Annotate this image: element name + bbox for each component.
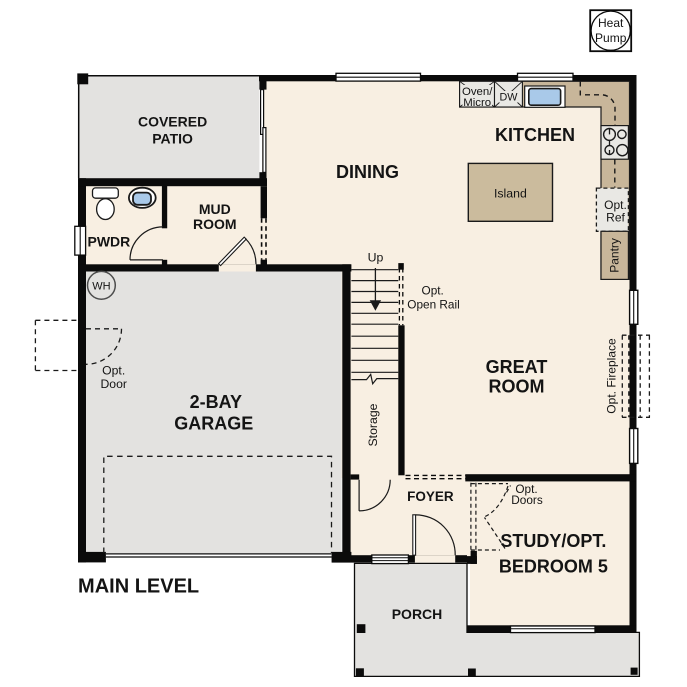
svg-text:Opt. Fireplace: Opt. Fireplace	[604, 338, 618, 414]
svg-text:Pump: Pump	[595, 31, 627, 45]
svg-text:DW: DW	[500, 92, 519, 104]
svg-text:MAIN LEVEL: MAIN LEVEL	[78, 575, 199, 597]
svg-text:Up: Up	[368, 251, 384, 265]
svg-text:PWDR: PWDR	[88, 234, 131, 250]
svg-text:ROOM: ROOM	[489, 377, 545, 397]
svg-text:Island: Island	[494, 186, 527, 200]
svg-text:COVERED: COVERED	[138, 113, 207, 129]
svg-text:Storage: Storage	[366, 403, 380, 446]
svg-text:Open Rail: Open Rail	[407, 298, 459, 312]
svg-text:GREAT: GREAT	[486, 357, 548, 377]
svg-text:Pantry: Pantry	[608, 238, 622, 273]
svg-text:Opt.: Opt.	[102, 364, 125, 378]
svg-text:WH: WH	[92, 280, 110, 292]
svg-text:Door: Door	[100, 377, 126, 391]
svg-text:STUDY/OPT.: STUDY/OPT.	[500, 531, 606, 551]
svg-text:2-BAY: 2-BAY	[190, 392, 242, 412]
svg-text:Ref: Ref	[606, 211, 625, 225]
svg-text:MUD: MUD	[199, 201, 231, 217]
svg-text:Opt.: Opt.	[422, 284, 444, 298]
svg-text:Doors: Doors	[511, 493, 543, 507]
svg-text:KITCHEN: KITCHEN	[495, 125, 575, 145]
svg-text:Micro: Micro	[463, 97, 491, 109]
svg-text:Oven/: Oven/	[462, 86, 493, 98]
svg-text:PORCH: PORCH	[392, 606, 443, 622]
svg-text:BEDROOM 5: BEDROOM 5	[499, 557, 608, 577]
svg-text:GARAGE: GARAGE	[174, 414, 253, 434]
svg-text:DINING: DINING	[336, 162, 399, 182]
svg-text:FOYER: FOYER	[407, 489, 454, 504]
svg-text:PATIO: PATIO	[152, 130, 193, 146]
svg-text:Heat: Heat	[598, 16, 624, 30]
svg-text:ROOM: ROOM	[193, 216, 237, 232]
